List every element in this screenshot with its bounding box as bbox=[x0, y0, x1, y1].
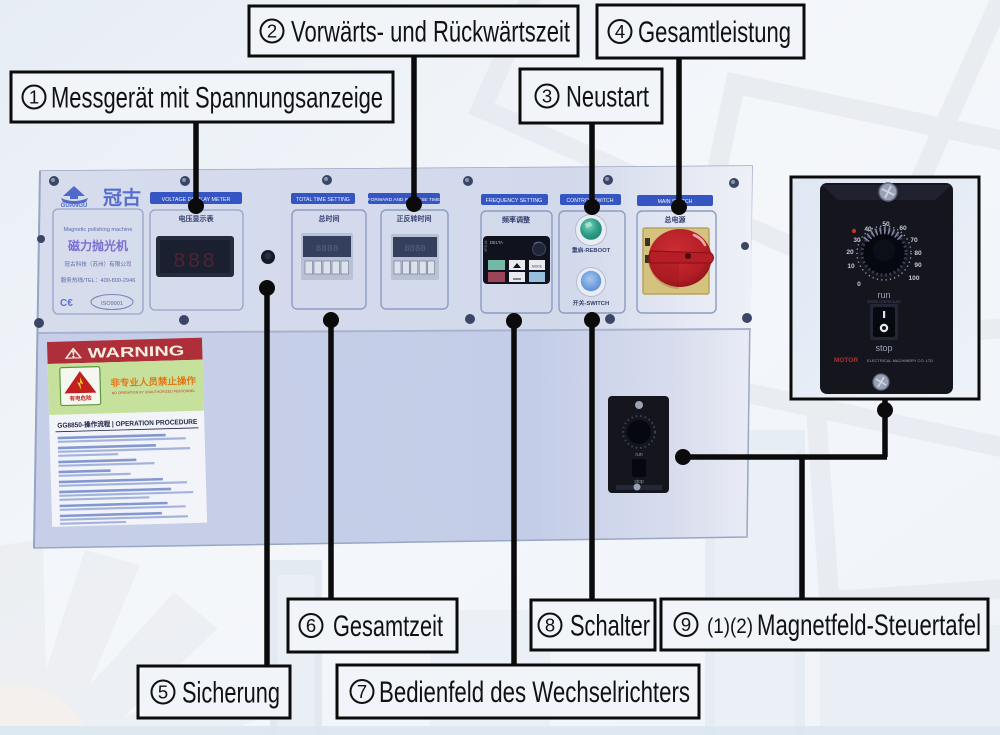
svg-text:Messgerät mit Spannungsanzeige: Messgerät mit Spannungsanzeige bbox=[51, 82, 383, 115]
svg-text:Schalter: Schalter bbox=[570, 610, 650, 643]
svg-text:3: 3 bbox=[542, 86, 552, 107]
svg-text:6: 6 bbox=[306, 615, 316, 636]
svg-text:7: 7 bbox=[357, 681, 367, 702]
svg-text:5: 5 bbox=[158, 682, 168, 703]
svg-text:Vorwärts- und Rückwärtszeit: Vorwärts- und Rückwärtszeit bbox=[291, 16, 570, 49]
svg-text:Gesamtzeit: Gesamtzeit bbox=[333, 610, 443, 643]
svg-text:(1)(2): (1)(2) bbox=[707, 615, 753, 638]
svg-text:1: 1 bbox=[29, 87, 39, 108]
svg-text:Magnetfeld-Steuertafel: Magnetfeld-Steuertafel bbox=[757, 609, 981, 642]
svg-text:Sicherung: Sicherung bbox=[182, 677, 280, 710]
svg-text:Gesamtleistung: Gesamtleistung bbox=[638, 16, 791, 49]
svg-text:4: 4 bbox=[615, 21, 625, 42]
svg-text:Neustart: Neustart bbox=[566, 81, 649, 114]
svg-text:2: 2 bbox=[267, 21, 277, 42]
svg-text:8: 8 bbox=[545, 615, 555, 636]
svg-text:Bedienfeld des Wechselrichters: Bedienfeld des Wechselrichters bbox=[379, 676, 690, 709]
svg-text:9: 9 bbox=[681, 614, 691, 635]
